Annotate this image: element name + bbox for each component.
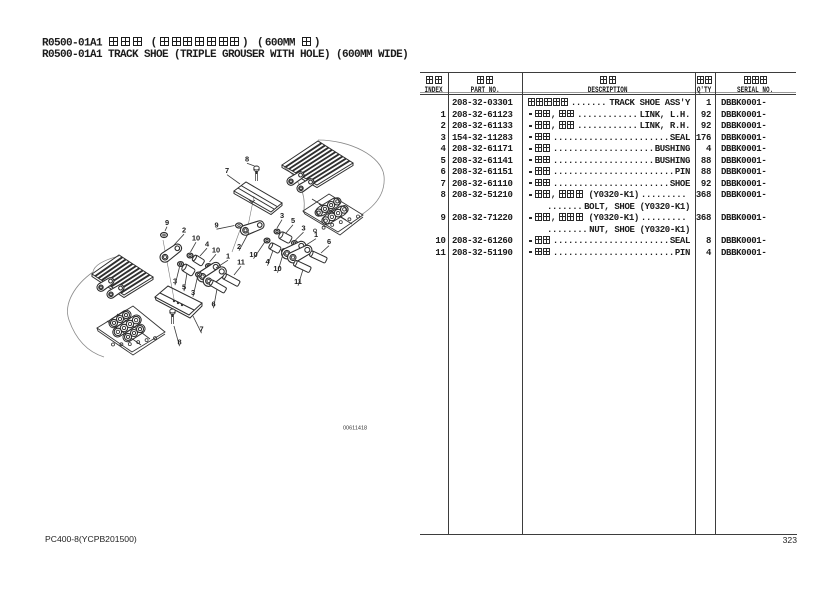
svg-text:10: 10 xyxy=(212,246,220,255)
svg-text:10: 10 xyxy=(273,264,281,273)
svg-text:2: 2 xyxy=(237,242,241,251)
svg-text:1: 1 xyxy=(314,230,318,239)
svg-text:00611418: 00611418 xyxy=(343,426,367,432)
svg-text:8: 8 xyxy=(177,338,181,347)
svg-text:3: 3 xyxy=(191,288,195,297)
svg-text:9: 9 xyxy=(214,221,218,230)
svg-text:7: 7 xyxy=(225,166,229,175)
svg-text:3: 3 xyxy=(173,277,177,286)
svg-text:10: 10 xyxy=(192,234,200,243)
svg-text:4: 4 xyxy=(205,240,210,249)
svg-text:6: 6 xyxy=(327,237,331,246)
svg-text:8: 8 xyxy=(245,155,249,164)
svg-text:3: 3 xyxy=(301,224,305,233)
svg-text:6: 6 xyxy=(211,300,215,309)
svg-text:5: 5 xyxy=(291,216,295,225)
svg-text:2: 2 xyxy=(182,226,186,235)
svg-text:5: 5 xyxy=(182,283,186,292)
svg-text:11: 11 xyxy=(294,277,302,286)
svg-text:3: 3 xyxy=(280,211,284,220)
svg-text:1: 1 xyxy=(226,252,230,261)
svg-text:9: 9 xyxy=(165,218,169,227)
svg-text:11: 11 xyxy=(237,258,245,267)
svg-text:7: 7 xyxy=(199,325,203,334)
svg-text:10: 10 xyxy=(249,250,257,259)
